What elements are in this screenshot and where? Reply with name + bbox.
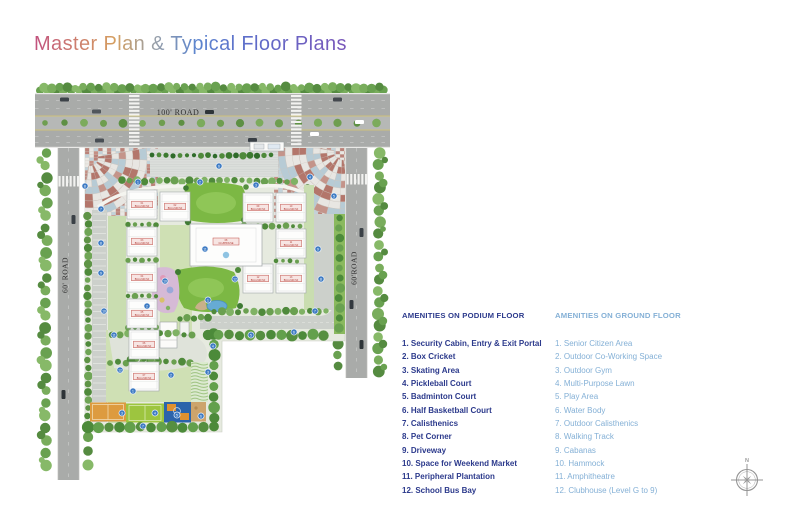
svg-text:3: 3 (207, 370, 209, 374)
svg-text:6: 6 (293, 330, 295, 334)
svg-text:1: 1 (132, 389, 134, 393)
svg-text:8: 8 (320, 277, 322, 281)
svg-text:BUA 2100 SF: BUA 2100 SF (284, 244, 299, 247)
svg-text:8: 8 (100, 241, 102, 245)
svg-text:3: 3 (255, 183, 257, 187)
svg-text:BUA 2100 SF: BUA 2100 SF (284, 208, 299, 211)
svg-text:10: 10 (163, 279, 167, 283)
svg-text:BUA 2100 SF: BUA 2100 SF (137, 345, 152, 348)
svg-text:3: 3 (121, 411, 123, 415)
svg-text:BUA 2100 SF: BUA 2100 SF (251, 279, 266, 282)
svg-text:1: 1 (207, 298, 209, 302)
svg-text:5: 5 (333, 194, 335, 198)
svg-text:12: 12 (233, 277, 237, 281)
svg-text:BUA 2100 SF: BUA 2100 SF (251, 208, 266, 211)
svg-text:5: 5 (250, 333, 252, 337)
svg-text:4: 4 (309, 175, 311, 179)
svg-text:11: 11 (112, 333, 116, 337)
svg-text:11: 11 (203, 247, 207, 251)
svg-text:CLUBHOUSE: CLUBHOUSE (219, 242, 234, 245)
svg-text:2: 2 (199, 180, 201, 184)
svg-text:BUA 2100 SF: BUA 2100 SF (168, 207, 183, 210)
svg-text:9: 9 (100, 271, 102, 275)
svg-text:1: 1 (137, 180, 139, 184)
svg-text:100' ROAD: 100' ROAD (157, 108, 200, 117)
svg-text:8: 8 (84, 184, 86, 188)
svg-text:7: 7 (142, 424, 144, 428)
svg-text:2: 2 (146, 304, 148, 308)
svg-text:4: 4 (154, 411, 156, 415)
svg-text:7: 7 (314, 309, 316, 313)
svg-text:60' ROAD: 60' ROAD (61, 257, 70, 293)
svg-text:7: 7 (100, 207, 102, 211)
svg-text:BUA 2100 SF: BUA 2100 SF (135, 242, 150, 245)
svg-text:N: N (745, 458, 749, 464)
svg-text:2: 2 (170, 373, 172, 377)
svg-text:BUA 2100 SF: BUA 2100 SF (135, 314, 150, 317)
svg-text:BUA 2100 SF: BUA 2100 SF (284, 279, 299, 282)
svg-text:BUA 2100 SF: BUA 2100 SF (135, 278, 150, 281)
svg-text:12: 12 (118, 368, 122, 372)
svg-text:4: 4 (212, 344, 214, 348)
svg-text:60'ROAD: 60'ROAD (350, 251, 359, 285)
svg-text:5: 5 (176, 413, 178, 417)
svg-text:BUA 2100 SF: BUA 2100 SF (137, 377, 152, 380)
svg-text:BUA 2100 SF: BUA 2100 SF (135, 205, 150, 208)
svg-text:9: 9 (317, 247, 319, 251)
svg-text:6: 6 (218, 164, 220, 168)
svg-text:6: 6 (200, 414, 202, 418)
svg-text:10: 10 (102, 309, 106, 313)
